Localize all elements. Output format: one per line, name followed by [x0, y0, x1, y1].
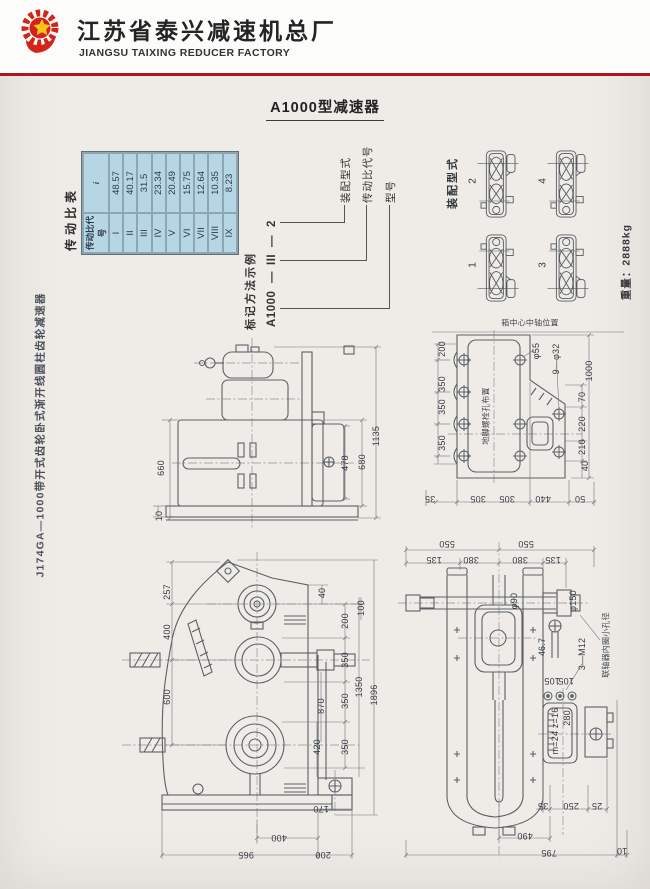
label-assembly-type: 装配型式: [338, 157, 353, 203]
factory-gear-logo-icon: [16, 6, 64, 62]
callout-line: [280, 308, 389, 309]
dim-label: 400: [271, 833, 287, 843]
table-row: II40.17: [124, 154, 136, 252]
dim-label: 680: [357, 454, 367, 470]
dim-label: 50: [575, 494, 585, 504]
open-gear-spec: m=24 z=16: [550, 708, 560, 755]
dim-label: 70: [577, 392, 587, 402]
elevation-drawing: [148, 336, 388, 532]
table-row: V20.49: [167, 154, 179, 252]
dim-label: 550: [518, 539, 534, 549]
dim-label: 660: [156, 460, 166, 476]
coupling-bore-note: 联轴器内圈小孔径: [601, 612, 612, 678]
table-row: VI15.75: [181, 154, 193, 252]
dim-label: 9—φ32: [551, 344, 561, 375]
dim-label: 200: [340, 613, 350, 629]
transmission-ratio-block: 传动比表 传动比代号 i I48.57 II40.17 III31.5 IV23…: [62, 140, 177, 303]
callout-line: [344, 205, 345, 223]
dim-label: 400: [162, 624, 172, 640]
dim-label: 100: [356, 600, 366, 616]
table-row: IX8.23: [224, 154, 236, 252]
designation-title: 标记方法示例: [242, 252, 258, 330]
dim-label: 135: [426, 555, 442, 565]
dash: —: [266, 235, 278, 247]
dim-label: 350: [340, 739, 350, 755]
dim-label: 420: [312, 739, 322, 755]
assembly-variant-icon: [481, 231, 515, 305]
ratio-value-header: i: [84, 154, 108, 212]
callout-line: [366, 205, 367, 261]
dim-label: 210: [577, 439, 587, 455]
ratio-table-title: 传动比表: [62, 140, 79, 251]
dim-label: 250: [563, 801, 579, 811]
ratio-code: III: [266, 254, 278, 265]
callout-line: [389, 205, 390, 309]
dim-label: 350: [340, 693, 350, 709]
dim-label: 478: [340, 455, 350, 471]
dim-label: 350: [340, 652, 350, 668]
dim-label: 40: [317, 588, 327, 598]
dash: —: [266, 271, 278, 283]
dim-label: 170: [313, 804, 329, 814]
dim-label: 965: [238, 850, 254, 860]
dim-label: 200: [315, 850, 331, 860]
dim-label: 10: [154, 511, 164, 521]
dim-label: 200: [437, 341, 447, 357]
dim-label: 1135: [371, 426, 381, 446]
table-row: VII12.64: [195, 154, 207, 252]
dim-label: 380: [512, 555, 528, 565]
anchor-bolt-label: 地脚螺栓孔布置: [481, 387, 492, 444]
dim-label: 305: [499, 494, 515, 504]
drawing-number-note: J174GA—1000带开式齿轮卧式渐开线圆柱齿轮减速器: [33, 292, 48, 577]
table-row: VIII10.35: [209, 154, 221, 252]
designation-example-block: 标记方法示例 A1000 — III — 2 装配型式 传动比代号 型号: [242, 130, 447, 286]
dim-label: 380: [463, 555, 479, 565]
assembly-type-title: 装配型式: [444, 157, 460, 209]
callout-line: [280, 222, 344, 223]
dim-label: 550: [439, 539, 455, 549]
dim-label: 35: [425, 494, 435, 504]
dim-label: 35: [538, 801, 548, 811]
side-view-drawing: [398, 540, 650, 870]
dim-label: φ150: [568, 590, 578, 612]
dim-label: 3—M12: [577, 638, 587, 671]
dim-label: 490: [517, 831, 533, 841]
assembly-variant-icon: [551, 231, 585, 305]
assembly-variant-icon: [551, 147, 585, 221]
assembly-variant-icon: [481, 147, 515, 221]
dim-label: 220: [577, 416, 587, 432]
dim-label: 795: [541, 848, 557, 858]
company-name-cn: 江苏省泰兴减速机总厂: [77, 12, 337, 46]
model-code: A1000: [266, 291, 278, 327]
assembly-variant-number: 2: [468, 178, 479, 184]
dim-label: 257: [162, 584, 172, 600]
dim-label: 1000: [584, 361, 594, 382]
table-row: IV23.34: [153, 154, 165, 252]
foundation-caption: 箱中心中轴位置: [501, 318, 558, 329]
dim-label: 10: [617, 846, 627, 856]
red-divider-rule: [0, 73, 650, 76]
dim-label: 350: [437, 376, 447, 392]
dim-label: 46.7: [537, 638, 547, 656]
dim-label: 280: [562, 710, 572, 726]
dim-label: 1896: [369, 685, 379, 706]
label-ratio-code: 传动比代号: [360, 146, 375, 204]
weight-label: 重量：2888kg: [619, 224, 634, 300]
dim-label: 350: [437, 435, 447, 451]
transmission-ratio-table: 传动比代号 i I48.57 II40.17 III31.5 IV23.34 V…: [81, 151, 239, 255]
dim-label: 105: [558, 676, 574, 686]
dim-label: 440: [535, 494, 551, 504]
dim-label: 1350: [354, 677, 364, 698]
ratio-col-header: 传动比代号: [84, 214, 108, 252]
dim-label: 40: [580, 461, 590, 471]
dim-label: 600: [162, 689, 172, 705]
assembly-variant-number: 1: [468, 262, 479, 268]
dim-label: φ55: [531, 343, 541, 359]
dim-label: 350: [437, 399, 447, 415]
catalog-page: 江苏省泰兴减速机总厂 JIANGSU TAIXING REDUCER FACTO…: [0, 0, 650, 889]
page-title: A1000型减速器: [0, 96, 650, 121]
assembly-variant-number: 3: [538, 262, 549, 268]
callout-line: [280, 260, 366, 261]
dim-label: 305: [470, 494, 486, 504]
company-name-en: JIANGSU TAIXING REDUCER FACTORY: [79, 47, 290, 59]
page-header: 江苏省泰兴减速机总厂 JIANGSU TAIXING REDUCER FACTO…: [0, 0, 650, 73]
table-row: III31.5: [138, 154, 150, 252]
dim-label: φ90: [509, 593, 519, 609]
assembly-code: 2: [266, 220, 278, 227]
label-model: 型号: [383, 180, 398, 203]
assembly-variant-number: 4: [538, 178, 549, 184]
dim-label: 870: [316, 698, 326, 714]
dim-label: 25: [592, 801, 602, 811]
dim-label: 135: [545, 555, 561, 565]
table-row: I48.57: [110, 154, 122, 252]
